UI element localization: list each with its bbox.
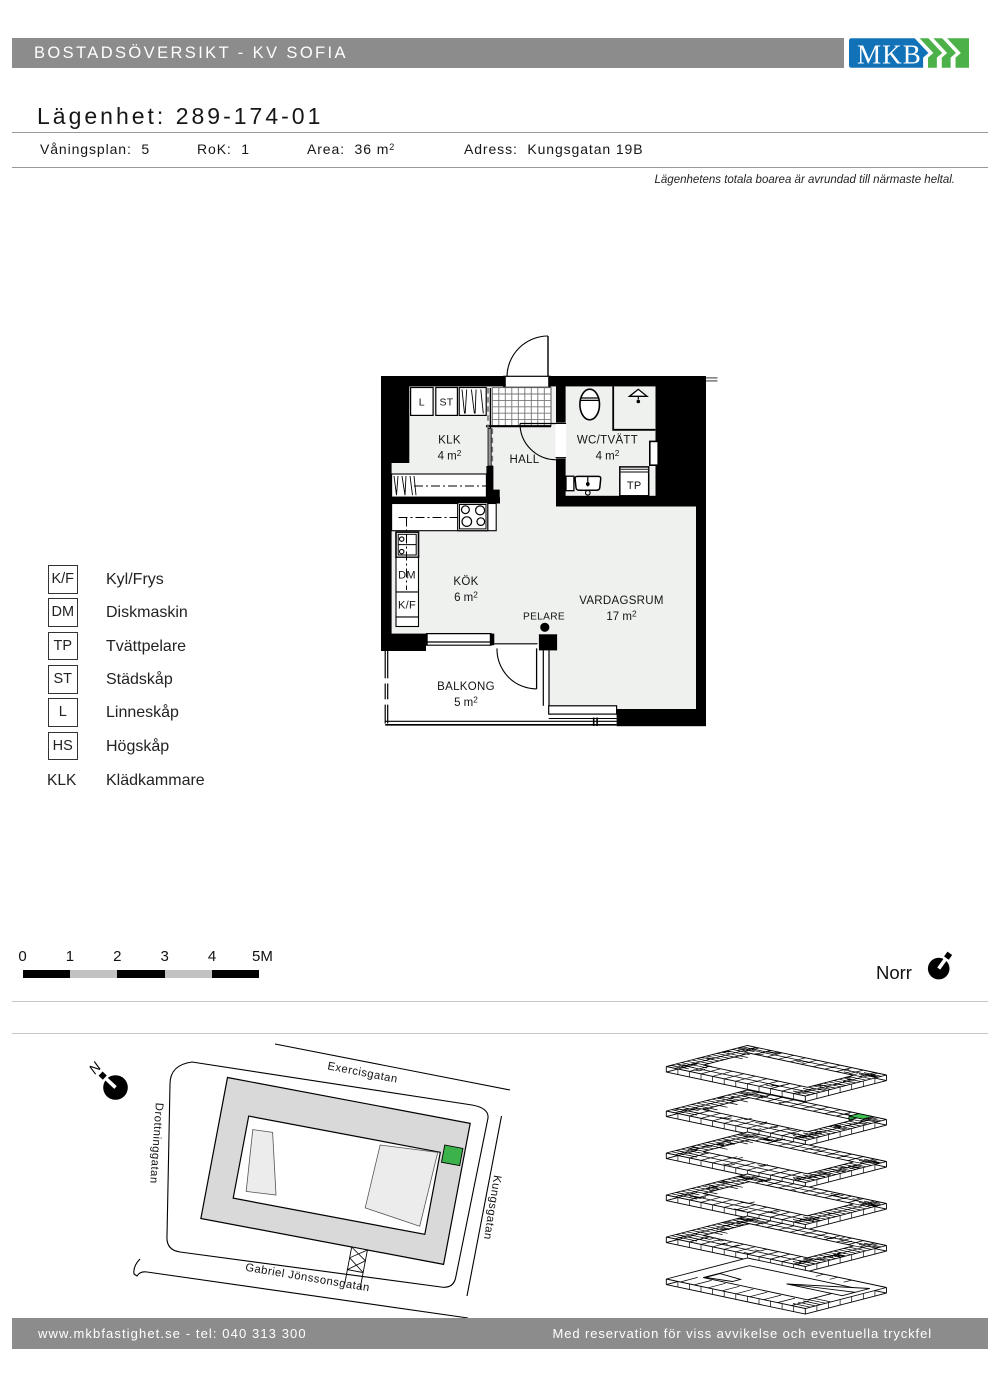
svg-text:WC/TVÄTT: WC/TVÄTT xyxy=(577,435,638,447)
svg-text:PELARE: PELARE xyxy=(523,612,565,623)
svg-text:Exercisgatan: Exercisgatan xyxy=(326,1060,398,1085)
svg-text:K/F: K/F xyxy=(398,600,416,612)
svg-text:MKB: MKB xyxy=(857,39,922,68)
svg-text:VARDAGSRUM: VARDAGSRUM xyxy=(579,595,664,607)
svg-text:KLK: KLK xyxy=(438,435,461,447)
svg-text:TP: TP xyxy=(627,480,642,492)
svg-text:5 m2: 5 m2 xyxy=(454,695,478,710)
svg-text:DM: DM xyxy=(398,570,416,582)
svg-text:KÖK: KÖK xyxy=(453,576,478,588)
svg-text:ST: ST xyxy=(439,397,453,409)
svg-text:HALL: HALL xyxy=(510,454,540,466)
svg-text:L: L xyxy=(419,397,425,409)
svg-text:BALKONG: BALKONG xyxy=(437,681,495,693)
svg-text:Drottninggatan: Drottninggatan xyxy=(147,1102,165,1184)
